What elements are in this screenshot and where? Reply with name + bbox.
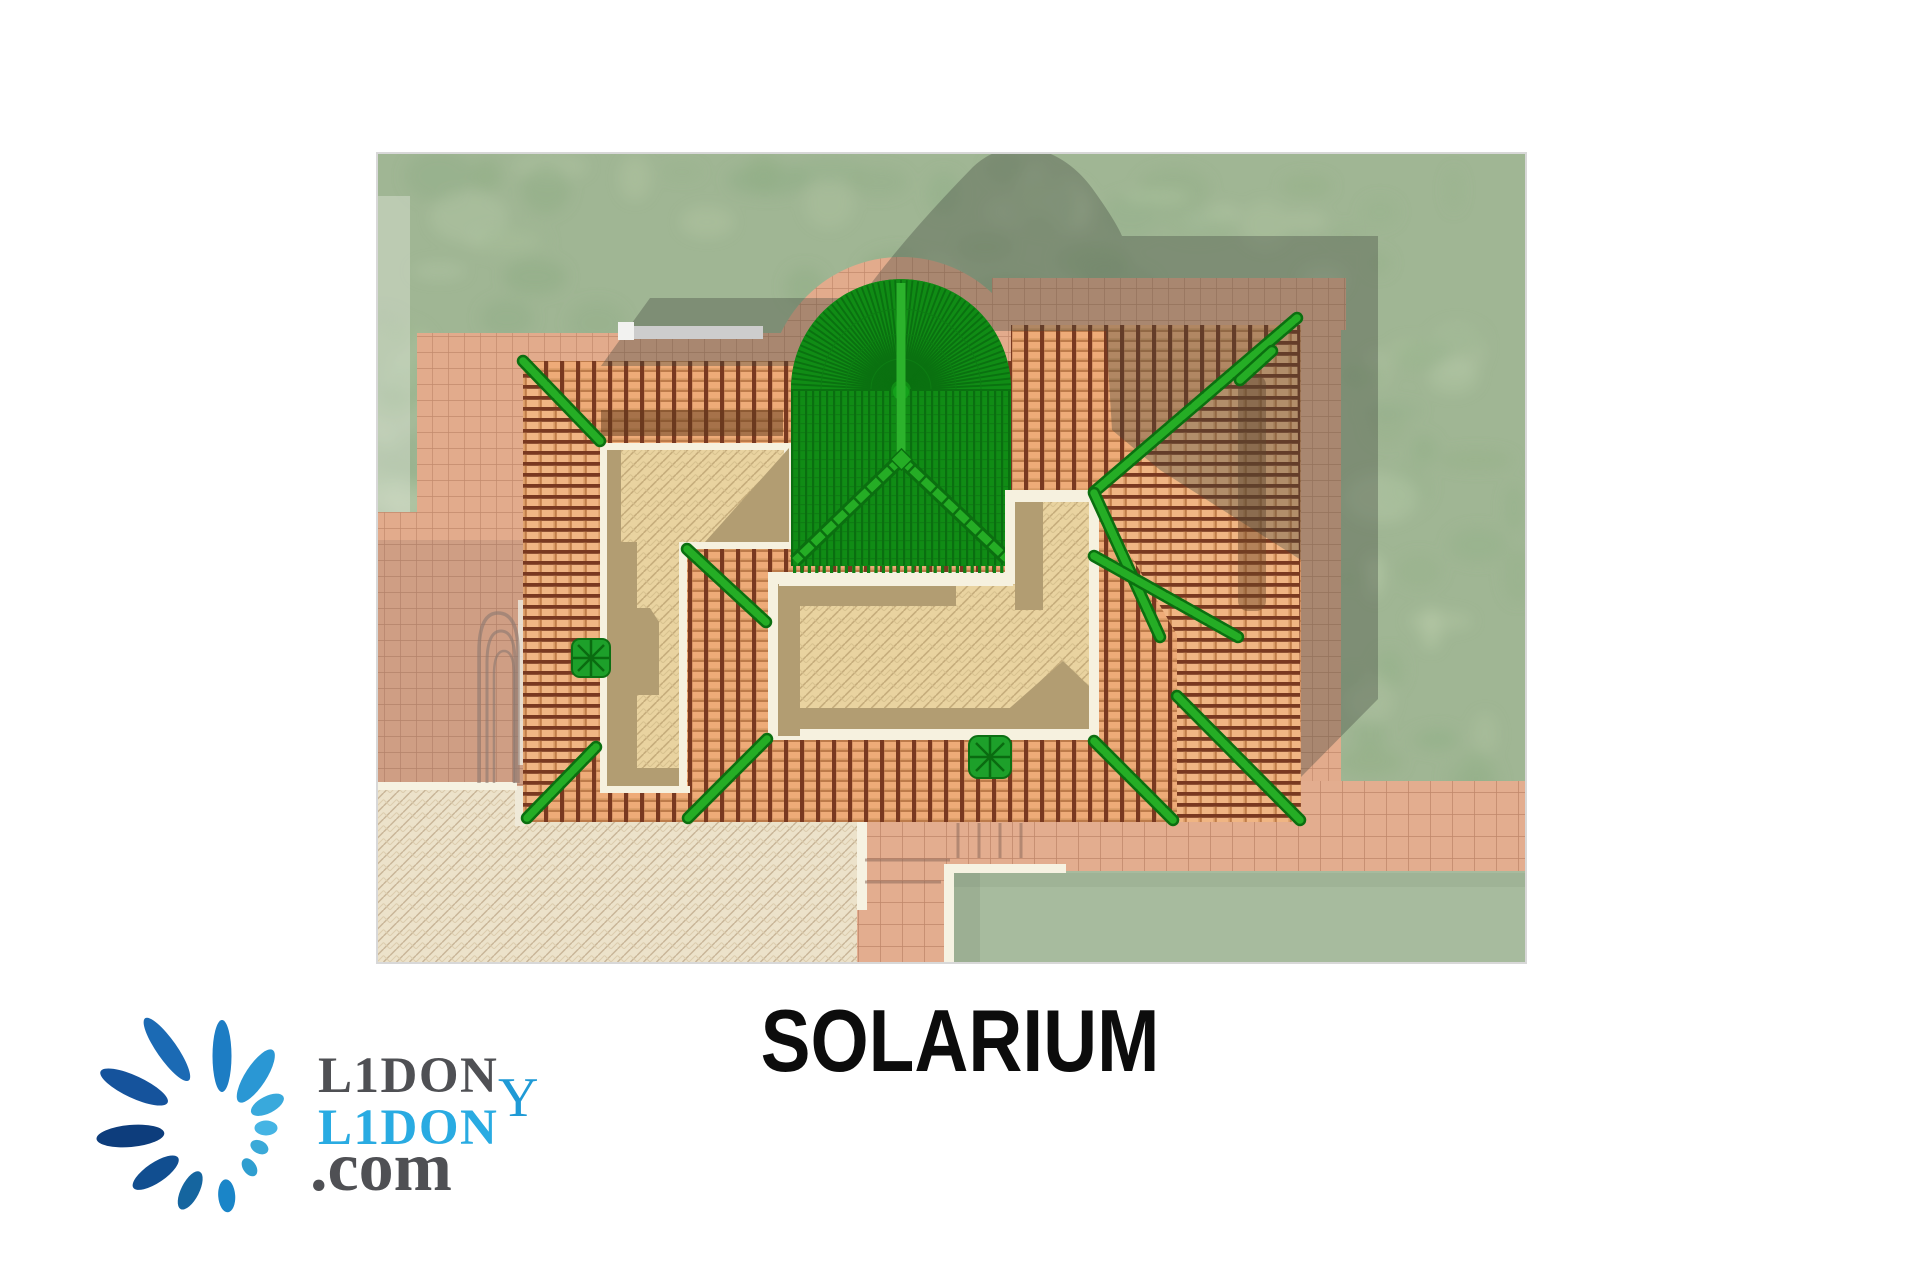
svg-text:.com: .com — [310, 1129, 452, 1206]
svg-text:L1DON: L1DON — [318, 1048, 498, 1104]
svg-text:SOLARIUM: SOLARIUM — [761, 992, 1160, 1090]
svg-text:Y: Y — [498, 1067, 538, 1129]
